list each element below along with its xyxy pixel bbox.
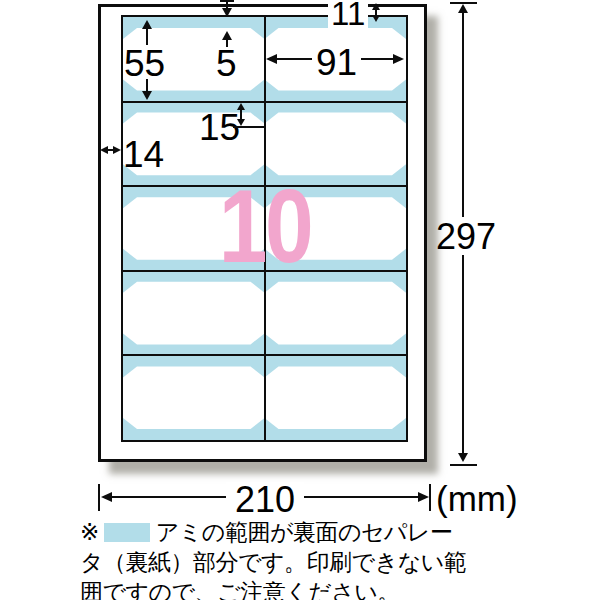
arrow-down-icon [237, 119, 245, 126]
dim-label-height-label: 55 [124, 45, 165, 82]
dim-top-margin-label: 11 [328, 0, 368, 28]
row-divider-line [123, 101, 406, 103]
label-count-text: 10 [218, 163, 310, 292]
dim-page-height-line [462, 12, 464, 217]
dim-page-width-label: 210 [226, 482, 304, 518]
dim-page-width-left-tick [98, 484, 100, 511]
unit-label: (mm) [436, 481, 518, 516]
note-line-1: ※アミの範囲が裏面のセパレー [80, 517, 450, 547]
arrow-down-icon [372, 15, 380, 22]
note-line-3: 囲ですので、ご注意ください。 [80, 577, 450, 600]
dim-side-margin-label: 14 [123, 136, 164, 173]
note-text: ※アミの範囲が裏面のセパレー タ（裏紙）部分です。印刷できない範 囲ですので、ご… [80, 517, 450, 600]
row-divider-line [123, 354, 406, 356]
label-cell [265, 355, 407, 440]
arrow-right-icon [418, 492, 429, 502]
arrow-down-icon [142, 91, 152, 100]
diagram-canvas: 10 5 11 55 91 15 14 297 210 (mm) [0, 0, 600, 600]
arrow-down-icon [222, 8, 232, 17]
dim-page-height-line [462, 255, 464, 454]
dim-slit-leader-line [233, 126, 264, 128]
dim-page-width-right-tick [429, 484, 431, 511]
dim-page-height-bottom-tick [450, 464, 477, 466]
dim-label-width-label: 91 [312, 44, 361, 81]
note-line-2: タ（裏紙）部分です。印刷できない範 [80, 547, 450, 577]
arrow-right-icon [113, 146, 121, 154]
arrow-down-icon [458, 453, 468, 462]
note-marker: ※ [80, 519, 99, 545]
dim-band-top-label: 5 [216, 45, 237, 82]
separator-color-swatch [104, 523, 150, 542]
arrow-right-icon [393, 54, 404, 64]
label-cell [123, 355, 265, 440]
dim-page-height-label: 297 [436, 219, 496, 255]
